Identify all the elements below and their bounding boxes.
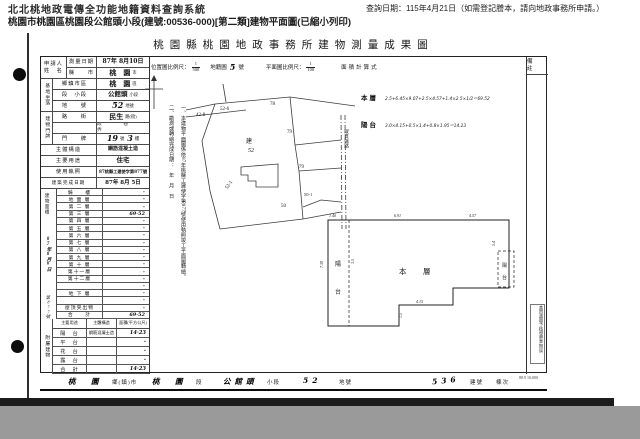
calc-label-main-floor: 本層 (361, 95, 378, 102)
footer-section-label: 段 (196, 378, 203, 386)
attached-row: 露 台 - (53, 356, 149, 365)
survey-sheet: 申請人 姓 名 測量日期 87年 8月10日 縣 市 桃 園市 基地坐落 鄉鎮市… (40, 56, 547, 373)
scale-row: 位置圖比例尺： 1 500 地籍圖 5 號 平面圖比例尺： 1 100 面積計算… (151, 60, 526, 74)
left-balcony-label: 台 (335, 288, 341, 296)
parcel-label: 50-1 (304, 192, 312, 197)
attached-area: 14·23 (117, 366, 149, 372)
floor-area-value: - (103, 305, 149, 311)
floor-name (57, 297, 103, 303)
dimension: 6.91 (394, 213, 401, 218)
floor-area-value: - (103, 196, 149, 202)
attached-use: 花 台 (53, 347, 87, 355)
attached-row: 平 台 - (53, 338, 149, 347)
field-label-survey-date: 測量日期 (67, 57, 97, 68)
attached-use: 露 台 (53, 356, 87, 364)
field-label-lot-number: 地 號 (53, 101, 97, 112)
plan-scale-denominator: 100 (306, 67, 315, 73)
field-value-section: 公館頭小段 (97, 90, 149, 101)
footer-section-value: 桃 園 (152, 376, 187, 387)
floor-name (57, 283, 103, 289)
floor-area-value: - (103, 240, 149, 246)
applicant-name-label: 姓 名 (44, 68, 63, 74)
right-balcony-label: 陽 (502, 262, 507, 269)
field-label-main-use: 主要用途 (41, 156, 97, 167)
floor-table-spine: 建物面積 87年8月6日 第877號 (41, 189, 57, 319)
field-value-county: 桃 園市 (97, 68, 149, 79)
applicant-box: 申請人 姓 名 (41, 57, 67, 79)
floor-name: 第 八 層 (57, 247, 103, 253)
document-title: 桃園縣桃園地政事務所建物測量成果圖 (40, 37, 547, 52)
calc-formula-main-floor: 2.5+6.45×9.07+2.5×4.57+1.4×2.5×1/2＝69.52 (385, 97, 490, 102)
attached-building-table: 陽 台 鋼筋混凝土造 14·23 平 台 - 花 台 - 露 台 - 合 計 1… (53, 329, 149, 374)
attached-building-spine: 附屬建物 (41, 319, 53, 374)
floor-name: 第 七 層 (57, 240, 103, 246)
parcel-label: 42-8 (196, 113, 206, 118)
floor-name: 第 三 層 (57, 211, 103, 217)
attached-area: - (117, 339, 149, 345)
calc-label-balcony: 陽台 (361, 122, 378, 129)
cadastre-map-number: 5 (230, 62, 236, 72)
area-calculation-block: 本層 2.5+6.45×9.07+2.5×4.57+1.4×2.5×1/2＝69… (361, 87, 529, 141)
building-address-spine: 建物門牌 (41, 112, 53, 145)
form-print-code: 88.9 10,000 (519, 375, 538, 380)
main-floor-label: 層 (423, 267, 431, 276)
field-value-door-number: 19號 3樓 (97, 134, 149, 145)
footer-location-row: 桃 園 鄉(鎮)市 桃 園 段 公館頭 小段 52 地號 536 建號 棟次 8… (40, 374, 547, 391)
field-value-structure: 鋼筋混凝土造 (97, 145, 149, 156)
location-scale-label: 位置圖比例尺： (151, 63, 190, 71)
floor-area-value: - (103, 297, 149, 303)
floor-row: 合 計 69·52 (57, 312, 149, 319)
floor-name: 第 九 層 (57, 254, 103, 260)
parcel-label: 50 (281, 204, 287, 209)
subject-building-mark: 建 (246, 137, 252, 145)
floor-area-table: 騎 樓 - 地 面 層 - 第 二 層 - 第 三 層 69·52 第 四 層 … (57, 189, 149, 319)
field-value-lot-number: 52地號 (97, 101, 149, 112)
attached-structure (87, 338, 117, 346)
left-balcony-label: 陽 (335, 260, 341, 268)
footer-township-label: 鄉(鎮)市 (112, 378, 137, 386)
footer-lot-label: 地號 (339, 378, 352, 386)
parcel-label: 52-6 (220, 107, 230, 112)
floor-name: 合 計 (57, 312, 103, 318)
scan-edge-line (27, 33, 29, 398)
attached-structure: 鋼筋混凝土造 (87, 329, 117, 337)
attached-structure (87, 347, 117, 355)
attached-row: 合 計 14·23 (53, 365, 149, 374)
field-label-completion-date: 建築完成日期 (41, 178, 97, 189)
site-location-spine: 基地坐落 (41, 79, 53, 112)
dimension: 4.15 (416, 299, 423, 304)
attached-structure (87, 356, 117, 364)
parcel-label: 52-1 (225, 180, 235, 191)
floor-area-value: - (103, 204, 149, 210)
field-value-use-permit: 87桃縣工建使字第877號 (97, 167, 149, 178)
floor-name: 騎 樓 (57, 189, 103, 195)
floor-area-value: - (103, 276, 149, 282)
floor-area-value: - (103, 283, 149, 289)
dimension: 5.4 (491, 241, 496, 246)
attached-row: 陽 台 鋼筋混凝土造 14·23 (53, 329, 149, 338)
attached-row: 花 台 - (53, 347, 149, 356)
location-scale-fraction: 1 500 (192, 62, 201, 73)
receipt-number: 第877號 (45, 295, 50, 319)
footer-subsection-value: 公館頭 (223, 376, 258, 387)
attached-header-structure: 主體構造 (87, 319, 117, 328)
attached-structure (87, 365, 117, 373)
attached-header-use: 主要用途 (53, 319, 87, 328)
scan-bottom-edge (0, 398, 614, 406)
cadastre-map-label: 地籍圖 (210, 63, 227, 71)
plan-scale-label: 平面圖比例尺： (266, 63, 305, 71)
punch-hole-top (13, 68, 26, 81)
calc-row-balcony: 陽台 3.0×4.15+0.5×1.4+0.8×1.95＝14.23 (361, 114, 529, 132)
field-value-lane: 段 巷 弄 (97, 123, 149, 134)
floor-area-value: - (103, 261, 149, 267)
query-date-note: 查詢日期：115年4月21日（如需登記謄本，請向地政事務所申請。） (366, 3, 604, 14)
field-label-structure: 主體構造 (41, 145, 97, 156)
floor-name: 地 面 層 (57, 196, 103, 202)
calc-formula-balcony: 3.0×4.15+0.5×1.4+0.8×1.95＝14.23 (385, 124, 466, 129)
attached-area: 14·23 (117, 330, 149, 336)
field-label-district: 鄉鎮市區 (53, 79, 97, 90)
punch-hole-bottom (11, 340, 24, 353)
receipt-date: 87年8月6日 (45, 237, 51, 293)
footer-building-number-label: 建號 (470, 378, 483, 386)
calc-row-main: 本層 2.5+6.45×9.07+2.5×4.57+1.4×2.5×1/2＝69… (361, 87, 529, 105)
dimension: 1.40 (329, 213, 336, 218)
dimension: 1.5 (398, 313, 403, 318)
attached-area: - (117, 348, 149, 354)
footer-building-number-value: 536 (432, 375, 460, 387)
floor-name: 第 四 層 (57, 218, 103, 224)
field-value-completion-date: 87年 8月 5日 (97, 178, 149, 189)
floor-area-value: - (103, 225, 149, 231)
attached-use: 合 計 (53, 365, 87, 373)
attached-header-row: 主要用途 主體構造 面積(平方公尺) (53, 319, 149, 329)
field-label-street: 路 街 (53, 112, 97, 123)
floor-area-value: - (103, 290, 149, 296)
floor-name: 屋頂突出物 (57, 305, 103, 311)
cadastre-map-suffix: 號 (238, 63, 244, 71)
location-scale-denominator: 500 (192, 67, 201, 73)
footer-township-value: 桃 園 (68, 376, 103, 387)
field-value-street: 民生路(街) (97, 112, 149, 123)
field-value-survey-date: 87年 8月10日 (97, 57, 149, 68)
attached-use: 平 台 (53, 338, 87, 346)
page: 北北桃地政電傳全功能地籍資料查詢系統 查詢日期：115年4月21日（如需登記謄本… (0, 0, 640, 439)
floor-area-value: - (103, 232, 149, 238)
floor-name: 地 下 層 (57, 290, 103, 296)
floor-name: 第 六 層 (57, 232, 103, 238)
floor-area-value: - (103, 269, 149, 275)
plan-scale-fraction: 1 100 (306, 62, 315, 73)
footer-subsection-label: 小段 (267, 378, 280, 386)
field-value-main-use: 住宅 (97, 156, 149, 167)
floor-name: 第 五 層 (57, 225, 103, 231)
footer-lot-value: 52 (303, 376, 321, 385)
certification-stamp: 本實測圖予核發謄本無誤 (530, 304, 545, 364)
remarks-column: 備 註 本實測圖予核發謄本無誤 (526, 57, 548, 374)
floor-area-value: - (103, 218, 149, 224)
right-balcony-label: 台 (502, 274, 507, 281)
field-value-district: 桃 園區 (97, 79, 149, 90)
field-label-section: 段 小段 (53, 90, 97, 101)
dimension: 4.57 (469, 213, 477, 218)
parcel-label: 78 (270, 102, 276, 107)
area-calculation-label: 面積計算式 (341, 63, 379, 71)
viewer-background (0, 406, 640, 439)
field-label-door-number: 門 牌 (53, 134, 97, 145)
dimension: 7.30 (319, 261, 324, 268)
document-subtitle: 桃園市桃園區桃園段公館頭小段(建號:00536-000)[第二類]建物平面圖(已… (8, 14, 351, 28)
field-label-county: 縣 市 (67, 68, 97, 79)
floor-plan: 陽 台 本 層 陽 台 1.40 6.91 4.57 7.30 3.5 5.4 … (301, 206, 526, 331)
railway-label: 縱貫鐵路 (339, 129, 349, 175)
floor-name: 第十一層 (57, 268, 103, 274)
footer-block-label: 棟次 (496, 378, 509, 386)
field-label-use-permit: 使用執照 (41, 167, 97, 178)
attached-use: 陽 台 (53, 329, 87, 337)
parcel-label: 79 (299, 165, 305, 170)
floor-row: 第十二層 - (57, 276, 149, 283)
floor-area-value: - (103, 189, 149, 195)
floor-name: 第 十 層 (57, 261, 103, 267)
main-floor-label: 本 (399, 266, 407, 276)
document-notes: 一、本建物平面圖係依87年桃縣工建使字第877號使用執照竣工平面圖轉繪。 二、勘… (155, 105, 187, 323)
floor-name: 第 二 層 (57, 203, 103, 209)
remarks-header: 備 註 (527, 57, 548, 75)
floor-area-value: 69·52 (103, 211, 149, 217)
parcel-label: 79 (287, 130, 293, 135)
dimension: 3.5 (350, 259, 355, 264)
floor-area-value: 69·52 (103, 312, 149, 318)
field-label-lane (53, 123, 97, 134)
floor-area-value: - (103, 247, 149, 253)
floor-area-value: - (103, 254, 149, 260)
floor-area-column-label: 建物面積 (45, 193, 50, 233)
floor-name: 第十二層 (57, 276, 103, 282)
note-2: 二、勘測或轉繪完成日期： 年 月 日 (165, 105, 175, 323)
subject-lot-number: 52 (248, 148, 254, 154)
floor-row: 地 下 層 - (57, 290, 149, 297)
attached-header-area: 面積(平方公尺) (117, 319, 149, 328)
attached-area: - (117, 357, 149, 363)
